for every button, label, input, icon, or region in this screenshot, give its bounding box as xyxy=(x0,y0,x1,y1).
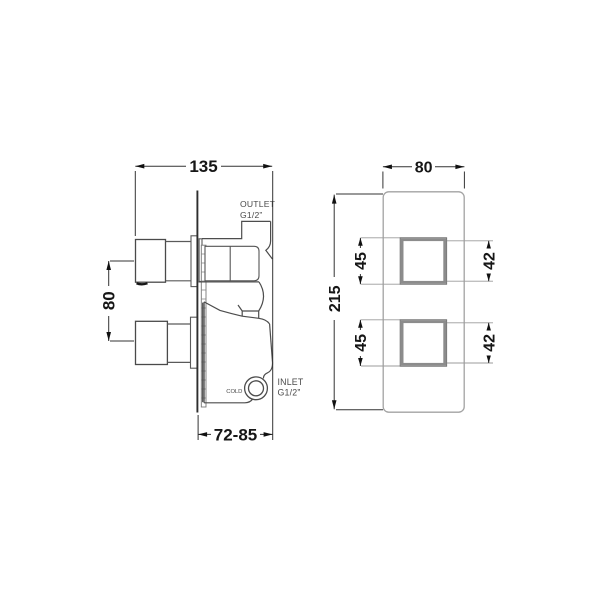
svg-text:45: 45 xyxy=(353,334,370,352)
svg-text:G1/2”: G1/2” xyxy=(278,388,301,398)
svg-text:215: 215 xyxy=(327,285,344,312)
svg-text:80: 80 xyxy=(100,291,119,310)
svg-text:COLD: COLD xyxy=(226,389,242,395)
svg-text:OUTLET: OUTLET xyxy=(240,199,276,209)
svg-text:42: 42 xyxy=(482,252,499,270)
svg-text:80: 80 xyxy=(415,159,433,176)
svg-text:45: 45 xyxy=(353,252,370,270)
svg-text:G1/2”: G1/2” xyxy=(240,210,263,220)
svg-text:135: 135 xyxy=(189,157,217,176)
svg-text:INLET: INLET xyxy=(278,377,304,387)
svg-text:72-85: 72-85 xyxy=(214,425,257,444)
svg-text:42: 42 xyxy=(482,334,499,352)
